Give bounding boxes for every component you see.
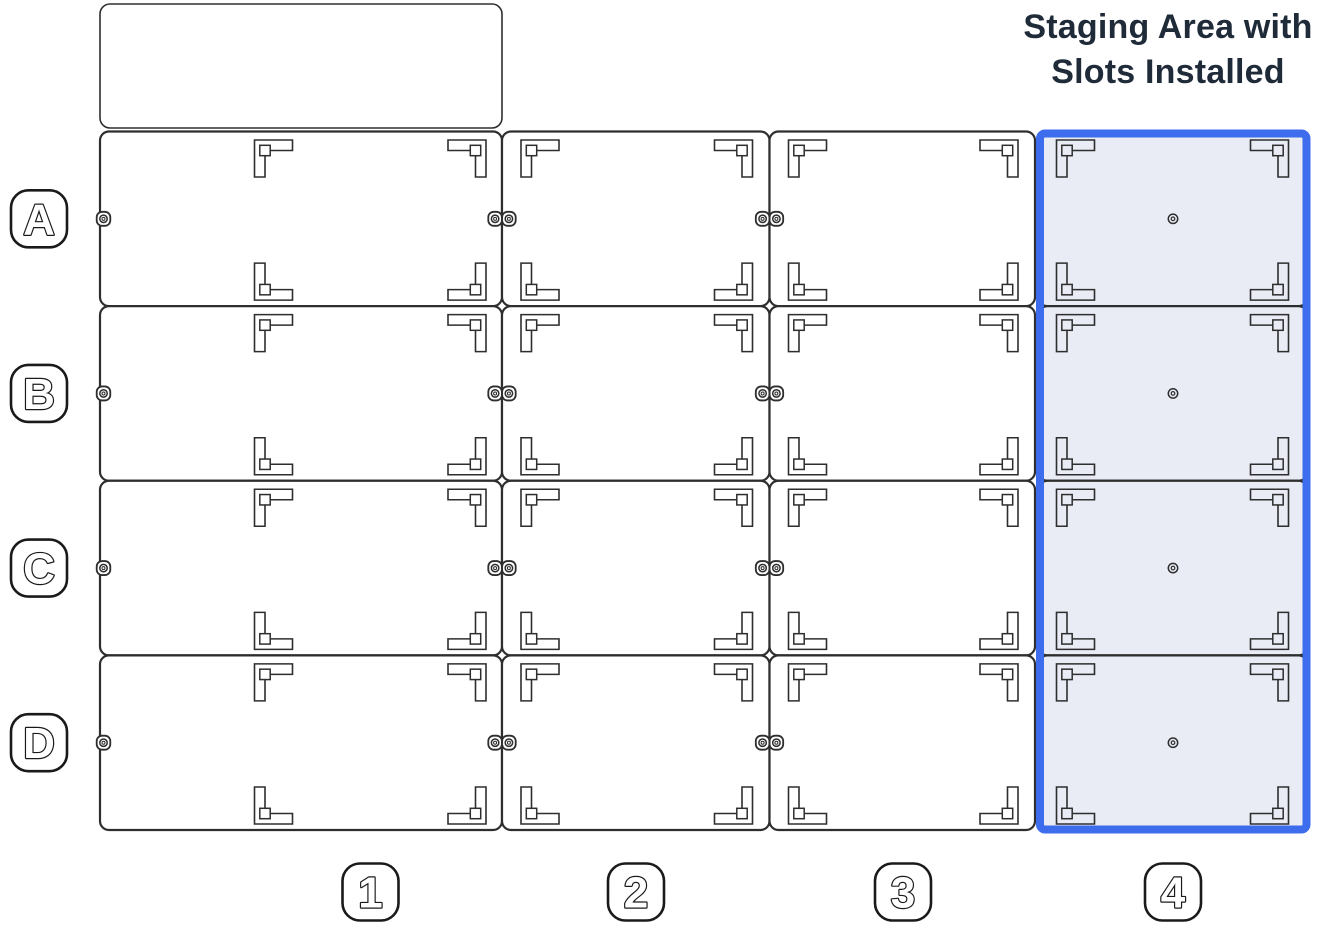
grommet-icon [488,386,502,400]
grommet-icon [97,386,111,400]
row-label-B-text: B [23,370,55,419]
col-label-2: 2 [608,864,664,921]
slot-panel-A2 [502,132,770,307]
col-label-2-text: 2 [624,869,648,918]
slot-panel-A1 [100,132,502,307]
grommet-icon [756,561,770,575]
grommet-icon [770,736,784,750]
slot-panel-D1 [100,655,502,830]
grommet-icon [770,561,784,575]
grommet-icon [502,736,516,750]
grommet-icon [502,212,516,226]
grommet-icon [488,561,502,575]
grommet-icon [756,212,770,226]
diagram-title-line1: Staging Area with [992,5,1336,50]
diagram-title: Staging Area with Slots Installed [992,5,1336,95]
slot-panel-A4 [1039,132,1308,307]
col-label-1: 1 [343,864,399,921]
grommet-icon [756,736,770,750]
grommet-icon [770,386,784,400]
row-label-C-text: C [23,545,55,594]
slot-panel-B2 [502,306,770,481]
row-label-D: D [11,714,67,771]
grommet-icon [488,736,502,750]
grommet-icon [770,212,784,226]
slot-panel-D2 [502,655,770,830]
col-label-1-text: 1 [358,869,382,918]
slot-panel-B4 [1039,306,1308,481]
row-label-D-text: D [23,719,55,768]
row-label-A: A [11,190,67,247]
col-label-3-text: 3 [891,869,915,918]
grommet-icon [756,386,770,400]
slot-grid: ABCD1234 [0,0,1336,927]
grommet-icon [502,386,516,400]
diagram-title-line2: Slots Installed [992,50,1336,95]
slot-panel-C1 [100,481,502,656]
col-label-4: 4 [1145,864,1201,921]
row-label-C: C [11,540,67,597]
slot-panel-A3 [770,132,1036,307]
blank-panel [100,4,502,128]
grommet-icon [97,212,111,226]
slot-panel-C3 [770,481,1036,656]
grommet-icon [97,736,111,750]
grommet-icon [488,212,502,226]
slot-panel-B3 [770,306,1036,481]
grommet-icon [502,561,516,575]
staging-area-diagram: ABCD1234 Staging Area with Slots Install… [0,0,1336,927]
grommet-icon [97,561,111,575]
row-label-A-text: A [23,195,55,244]
col-label-4-text: 4 [1161,869,1186,918]
slot-panel-B1 [100,306,502,481]
slot-panel-D4 [1039,655,1308,830]
col-label-3: 3 [875,864,931,921]
slot-panel-D3 [770,655,1036,830]
slot-panel-C2 [502,481,770,656]
slot-panel-C4 [1039,481,1308,656]
row-label-B: B [11,365,67,422]
